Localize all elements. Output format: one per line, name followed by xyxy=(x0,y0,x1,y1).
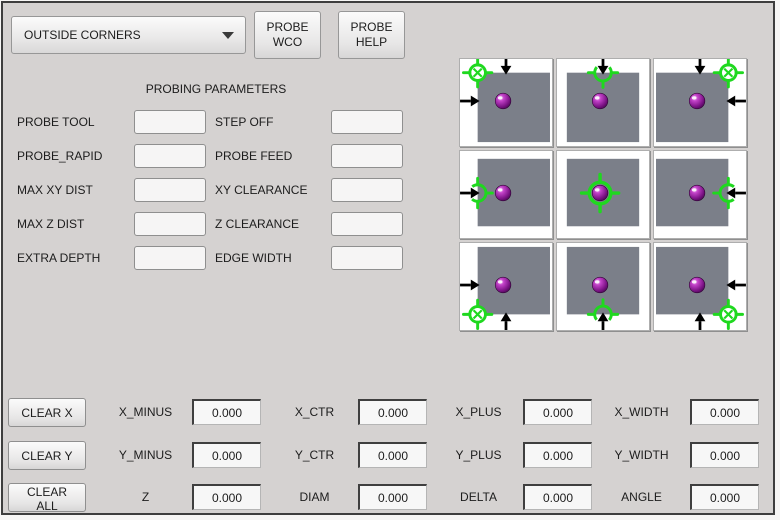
clear-x-button[interactable]: CLEAR X xyxy=(8,398,86,427)
param-label-probe-tool: PROBE TOOL xyxy=(17,109,95,135)
probe-cell-top-left xyxy=(459,58,553,147)
probe-mode-select[interactable]: OUTSIDE CORNERS xyxy=(11,16,246,54)
result-label-angle: ANGLE xyxy=(594,483,689,512)
param-label-probe-rapid: PROBE_RAPID xyxy=(17,143,102,169)
param-input-max-xy-dist[interactable] xyxy=(134,178,206,202)
param-label-max-xy-dist: MAX XY DIST xyxy=(17,177,93,203)
param-label-xy-clearance: XY CLEARANCE xyxy=(215,177,307,203)
param-label-extra-depth: EXTRA DEPTH xyxy=(17,245,100,271)
param-label-step-off: STEP OFF xyxy=(215,109,273,135)
param-input-z-clearance[interactable] xyxy=(331,212,403,236)
result-field-y-ctr[interactable] xyxy=(358,442,427,468)
result-field-angle[interactable] xyxy=(690,484,759,510)
result-field-z[interactable] xyxy=(192,484,261,510)
probe-help-button[interactable]: PROBE HELP xyxy=(338,11,405,59)
result-field-y-plus[interactable] xyxy=(523,442,592,468)
result-field-y-minus[interactable] xyxy=(192,442,261,468)
probe-cell-middle-left xyxy=(459,150,553,239)
probe-diagram xyxy=(459,58,747,333)
param-input-extra-depth[interactable] xyxy=(134,246,206,270)
param-label-probe-feed: PROBE FEED xyxy=(215,143,292,169)
result-field-x-minus[interactable] xyxy=(192,399,261,425)
probe-mode-selected-value: OUTSIDE CORNERS xyxy=(12,28,222,42)
probe-cell-bottom-center xyxy=(556,242,650,331)
result-label-y-width: Y_WIDTH xyxy=(594,441,689,470)
result-field-diam[interactable] xyxy=(358,484,427,510)
result-field-x-width[interactable] xyxy=(690,399,759,425)
result-label-y-plus: Y_PLUS xyxy=(431,441,526,470)
chevron-down-icon xyxy=(222,32,234,39)
probing-parameters-title: PROBING PARAMETERS xyxy=(66,82,366,96)
param-input-edge-width[interactable] xyxy=(331,246,403,270)
clear-all-button[interactable]: CLEAR ALL xyxy=(8,483,86,512)
param-input-step-off[interactable] xyxy=(331,110,403,134)
result-label-x-ctr: X_CTR xyxy=(267,398,362,427)
param-label-z-clearance: Z CLEARANCE xyxy=(215,211,299,237)
result-field-x-ctr[interactable] xyxy=(358,399,427,425)
probe-cell-bottom-left xyxy=(459,242,553,331)
param-input-probe-tool[interactable] xyxy=(134,110,206,134)
result-label-z: Z xyxy=(98,483,193,512)
result-label-x-minus: X_MINUS xyxy=(98,398,193,427)
probe-cell-middle-right xyxy=(653,150,747,239)
param-input-probe-rapid[interactable] xyxy=(134,144,206,168)
result-field-x-plus[interactable] xyxy=(523,399,592,425)
param-label-edge-width: EDGE WIDTH xyxy=(215,245,292,271)
probe-cell-bottom-right xyxy=(653,242,747,331)
result-field-delta[interactable] xyxy=(523,484,592,510)
param-input-probe-feed[interactable] xyxy=(331,144,403,168)
result-field-y-width[interactable] xyxy=(690,442,759,468)
result-label-diam: DIAM xyxy=(267,483,362,512)
param-input-max-z-dist[interactable] xyxy=(134,212,206,236)
result-label-y-ctr: Y_CTR xyxy=(267,441,362,470)
result-label-x-plus: X_PLUS xyxy=(431,398,526,427)
param-input-xy-clearance[interactable] xyxy=(331,178,403,202)
probe-cell-center xyxy=(556,150,650,239)
clear-y-button[interactable]: CLEAR Y xyxy=(8,441,86,470)
result-label-y-minus: Y_MINUS xyxy=(98,441,193,470)
result-label-delta: DELTA xyxy=(431,483,526,512)
probe-cell-top-right xyxy=(653,58,747,147)
probe-wco-button[interactable]: PROBE WCO xyxy=(254,11,321,59)
probe-panel: OUTSIDE CORNERS PROBE WCO PROBE HELP PRO… xyxy=(1,1,775,515)
probe-cell-top-center xyxy=(556,58,650,147)
result-label-x-width: X_WIDTH xyxy=(594,398,689,427)
param-label-max-z-dist: MAX Z DIST xyxy=(17,211,84,237)
